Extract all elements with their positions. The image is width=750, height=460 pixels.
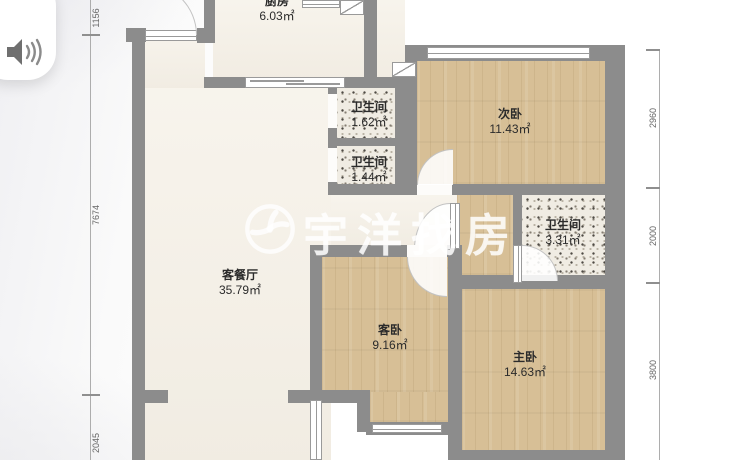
room-name: 主卧 xyxy=(485,350,565,365)
dim-line xyxy=(659,49,660,460)
second-bedroom-door-gap xyxy=(417,184,452,195)
room-label-bathroom-2: 卫生间 1.44㎡ xyxy=(329,155,409,185)
bathroom3-door-leaf xyxy=(513,245,522,283)
room-label-second-bedroom: 次卧 11.43㎡ xyxy=(470,107,550,137)
dim-tick xyxy=(82,394,100,396)
room-name: 卫生间 xyxy=(523,218,603,233)
room-label-bathroom-3: 卫生间 3.31㎡ xyxy=(523,218,603,248)
wall-entrance-corner-left xyxy=(126,28,146,42)
wall-master-left xyxy=(448,245,462,460)
guest-bedroom-floor-lower xyxy=(370,392,448,422)
room-name: 厨房 xyxy=(237,0,317,9)
dim-label-right-2: 3800 xyxy=(648,360,658,380)
sliding-door-panel xyxy=(250,80,304,82)
second-bedroom-window xyxy=(427,47,590,59)
entrance-door-swing xyxy=(145,0,197,35)
room-area: 14.63㎡ xyxy=(485,365,565,380)
entry-flue-box xyxy=(392,62,416,77)
wall-kitchen-bottom-left xyxy=(204,77,245,88)
room-label-bathroom-1: 卫生间 1.62㎡ xyxy=(329,100,409,130)
wall-entrance-corner-right xyxy=(197,28,215,43)
wall-livingroom-stub xyxy=(132,390,168,403)
wall-bathrooms-divider xyxy=(337,138,395,146)
living-side-window xyxy=(310,400,322,460)
dim-label-left-2: 2045 xyxy=(91,433,101,453)
dim-tick xyxy=(646,282,660,284)
wall-master-bottom xyxy=(455,450,625,460)
wall-guest-left xyxy=(310,245,322,395)
room-name: 卫生间 xyxy=(329,155,409,170)
master-door-leaf xyxy=(450,203,460,249)
room-name: 客餐厅 xyxy=(200,268,280,283)
room-area: 3.31㎡ xyxy=(523,233,603,248)
dim-label-right-0: 2960 xyxy=(648,108,658,128)
room-area: 1.44㎡ xyxy=(329,170,409,185)
room-name: 卫生间 xyxy=(329,100,409,115)
room-name: 次卧 xyxy=(470,107,550,122)
wall-bathroom3-left xyxy=(513,184,522,245)
room-area: 9.16㎡ xyxy=(350,338,430,353)
sliding-door-panel xyxy=(286,83,340,85)
wall-mid-horizontal xyxy=(328,184,625,195)
kitchen-sliding-door xyxy=(245,77,345,88)
room-area: 11.43㎡ xyxy=(470,122,550,137)
room-area: 35.79㎡ xyxy=(200,283,280,298)
kitchen-flue-box xyxy=(340,0,364,15)
room-label-guest-bedroom: 客卧 9.16㎡ xyxy=(350,323,430,353)
audio-play-button[interactable] xyxy=(0,0,56,80)
room-label-living-dining: 客餐厅 35.79㎡ xyxy=(200,268,280,298)
guest-bottom-window xyxy=(372,424,442,433)
dim-label-left-0: 1156 xyxy=(91,8,101,27)
dim-line xyxy=(90,0,91,460)
room-label-master-bedroom: 主卧 14.63㎡ xyxy=(485,350,565,380)
dim-tick xyxy=(646,187,660,189)
dim-tick xyxy=(646,49,660,51)
room-label-kitchen: 厨房 6.03㎡ xyxy=(237,0,317,24)
wall-kitchen-left xyxy=(204,0,215,30)
dim-label-left-1: 7674 xyxy=(91,205,101,225)
dim-label-right-1: 2000 xyxy=(648,226,658,246)
room-area: 6.03㎡ xyxy=(237,9,317,24)
floorplan-screen: 宇洋找房 厨房 6.03㎡ 卫生间 1.62㎡ 卫生间 1.44㎡ 次卧 11.… xyxy=(0,0,750,460)
dim-tick xyxy=(82,34,100,36)
room-area: 1.62㎡ xyxy=(329,115,409,130)
guest-door-gap xyxy=(407,245,447,257)
wall-kitchen-right xyxy=(364,0,377,88)
wall-right-outer xyxy=(605,45,625,460)
passage-floor xyxy=(457,195,513,275)
floor-plan: 宇洋找房 厨房 6.03㎡ 卫生间 1.62㎡ 卫生间 1.44㎡ 次卧 11.… xyxy=(0,0,750,460)
room-name: 客卧 xyxy=(350,323,430,338)
